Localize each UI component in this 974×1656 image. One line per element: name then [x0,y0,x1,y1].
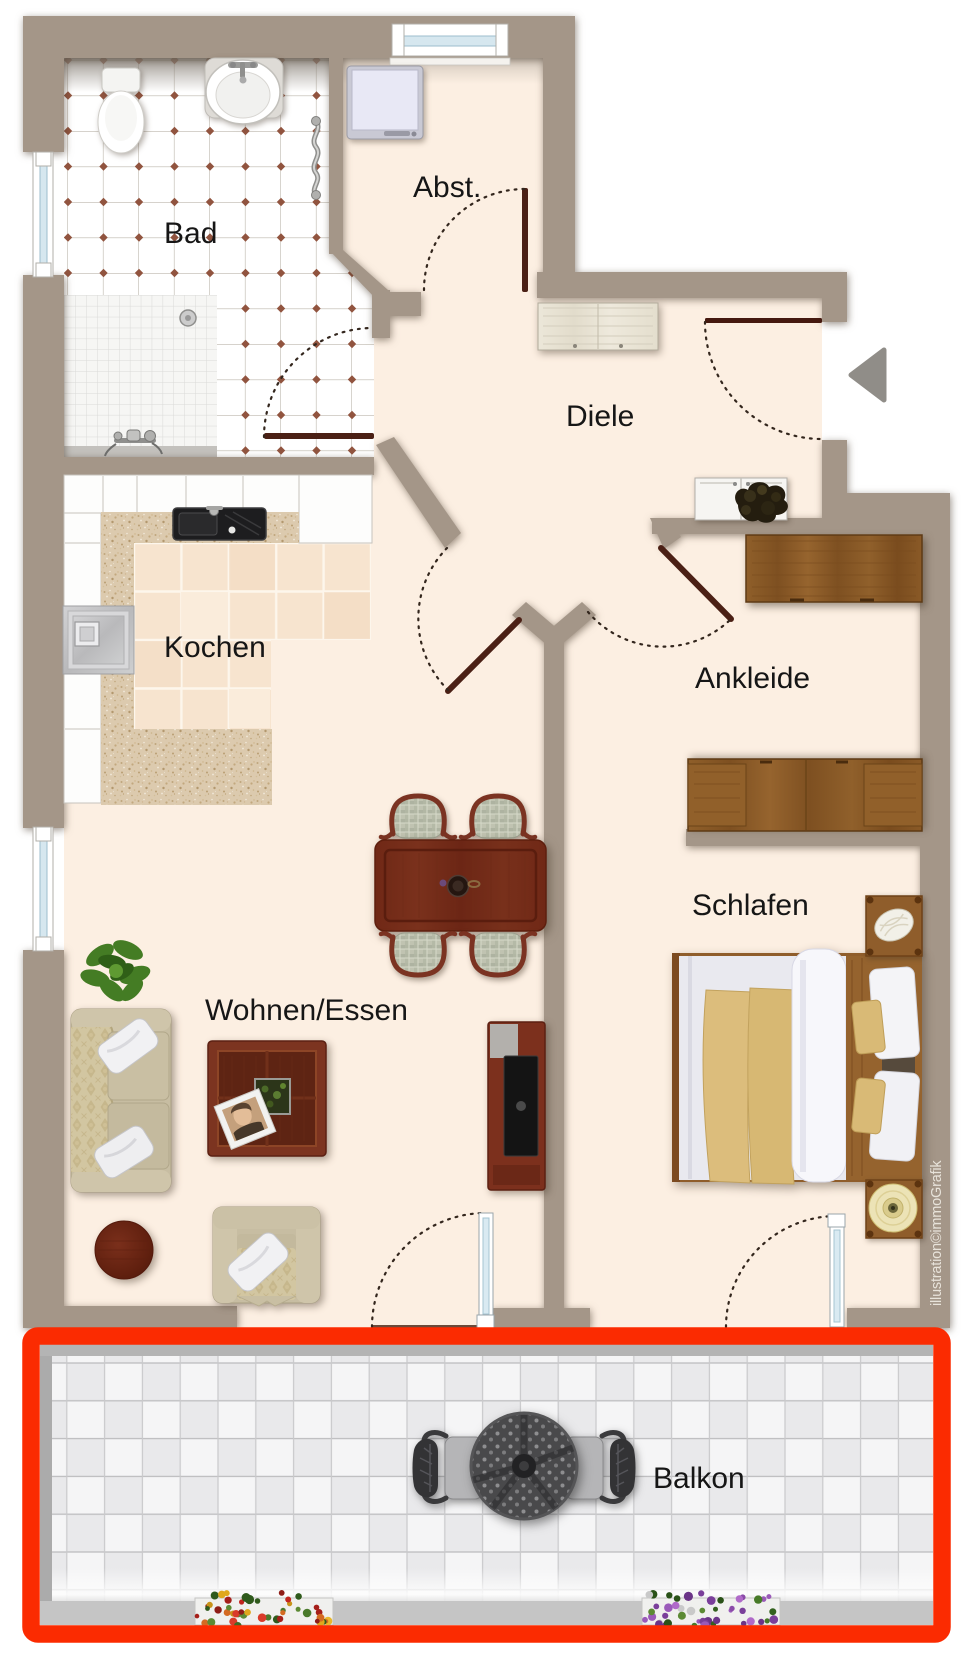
svg-text:Kochen: Kochen [164,631,266,664]
svg-text:Schlafen: Schlafen [692,889,809,922]
svg-text:Abst.: Abst. [413,171,481,204]
svg-text:Bad: Bad [164,217,217,250]
svg-text:Diele: Diele [566,400,634,433]
svg-text:Wohnen/Essen: Wohnen/Essen [205,994,408,1027]
svg-text:Balkon: Balkon [653,1462,745,1495]
svg-text:Ankleide: Ankleide [695,662,810,695]
svg-text:illustration©immoGrafik: illustration©immoGrafik [929,1160,945,1306]
